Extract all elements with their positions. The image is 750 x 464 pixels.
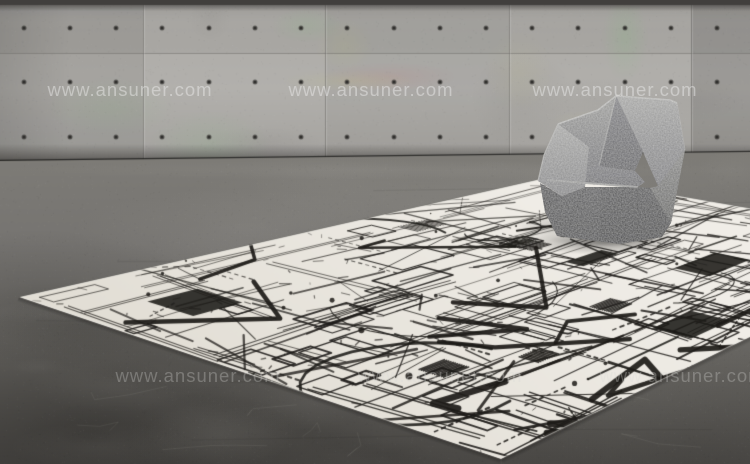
showroom-product-photo: www.ansuner.com www.ansuner.com www.ansu… — [0, 0, 750, 464]
scene-canvas-wall-floor-rug — [0, 0, 750, 464]
